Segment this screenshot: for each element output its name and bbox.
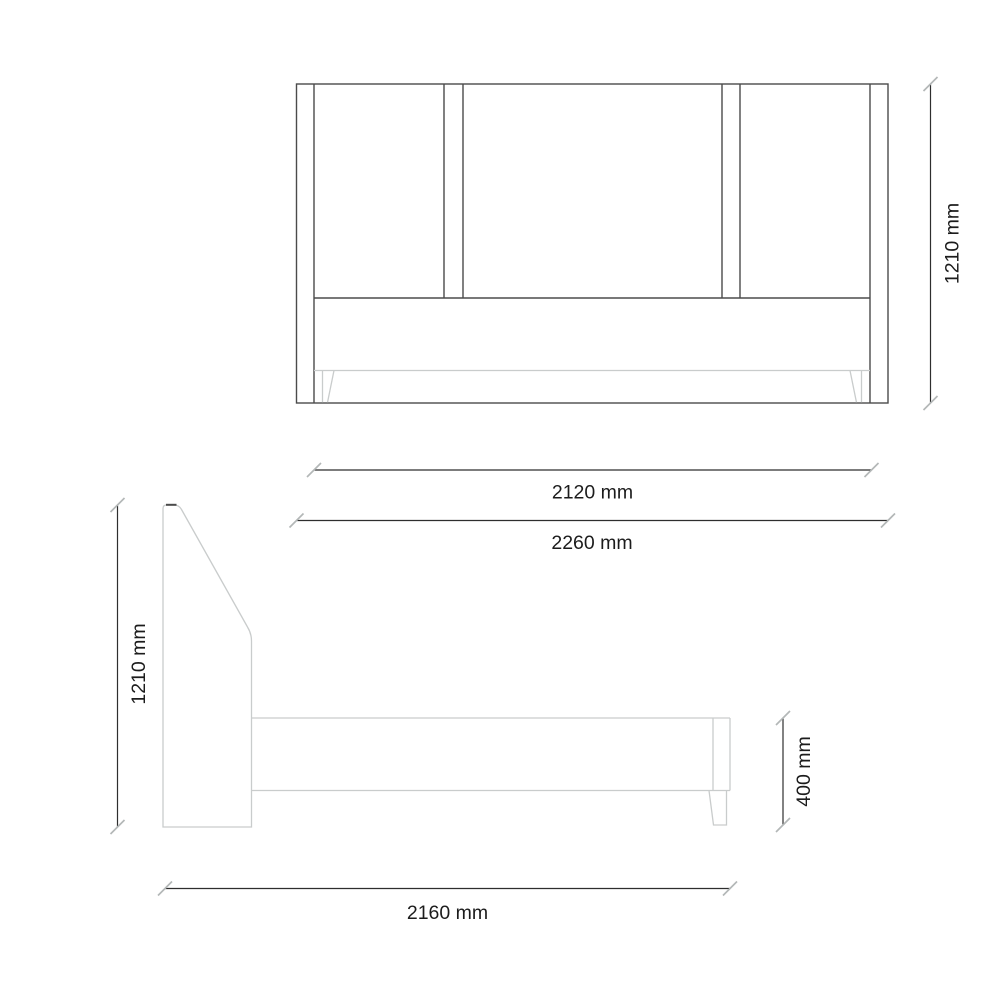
dimension-label-front-outer-width: 2260 mm [551,532,632,554]
front-right-leg-inner-edge [850,371,857,403]
dimension-front-inner-width: 2120 mm [307,463,879,504]
dimension-annotations: 1210 mm 2120 mm 2260 mm 1210 [111,77,964,924]
dimension-front-outer-width: 2260 mm [290,514,896,555]
side-headboard-outline [163,505,252,827]
front-view [297,84,889,403]
dimension-label-side-base-height: 400 mm [793,736,815,806]
drawing-canvas: 1210 mm 2120 mm 2260 mm 1210 [0,0,1000,1000]
dimension-front-height: 1210 mm [924,77,964,410]
side-foot-leg-outline [709,791,727,826]
dimension-side-length: 2160 mm [158,882,737,925]
dimension-label-front-inner-width: 2120 mm [552,482,633,504]
front-outer-frame [297,84,889,403]
dimension-side-height: 1210 mm [111,498,151,834]
bed-technical-drawing: 1210 mm 2120 mm 2260 mm 1210 [0,0,1000,1000]
dimension-label-side-length: 2160 mm [407,902,488,924]
dimension-side-base-height: 400 mm [776,711,815,832]
dimension-label-front-height: 1210 mm [942,203,964,284]
dimension-label-side-height: 1210 mm [128,623,150,704]
front-left-leg-inner-edge [328,371,335,403]
side-view [163,505,730,827]
